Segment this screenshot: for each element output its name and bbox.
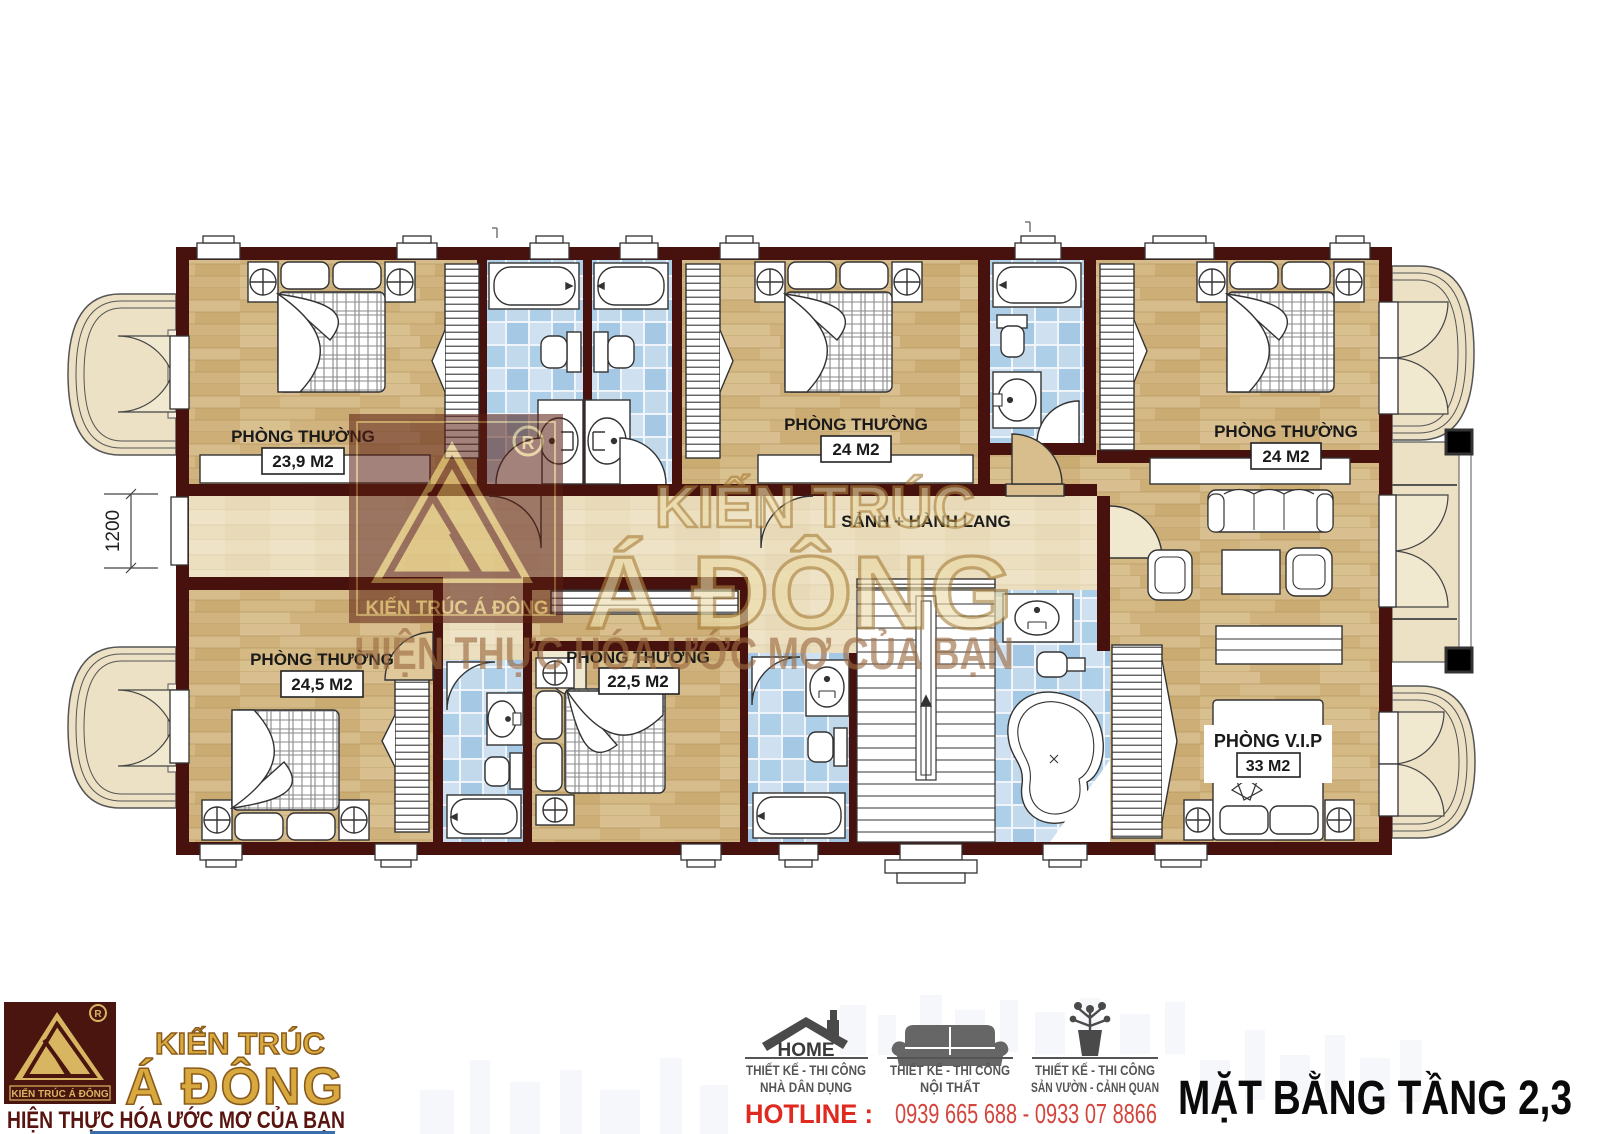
svg-text:PHÒNG THƯỜNG: PHÒNG THƯỜNG <box>784 415 928 434</box>
svg-text:THIẾT KẾ - THI CÔNG: THIẾT KẾ - THI CÔNG <box>1035 1061 1155 1078</box>
svg-text:R: R <box>94 1009 102 1020</box>
svg-text:1200: 1200 <box>103 510 124 552</box>
svg-text:R: R <box>522 433 535 453</box>
svg-text:KIẾN TRÚC Á ĐÔNG: KIẾN TRÚC Á ĐÔNG <box>11 1087 108 1100</box>
svg-text:KIẾN TRÚC: KIẾN TRÚC <box>655 475 975 540</box>
svg-text:33 M2: 33 M2 <box>1246 758 1291 775</box>
svg-text:24,5 M2: 24,5 M2 <box>291 675 352 694</box>
svg-text:SẢN VƯỜN - CẢNH QUAN: SẢN VƯỜN - CẢNH QUAN <box>1031 1078 1159 1095</box>
svg-text:PHÒNG V.I.P: PHÒNG V.I.P <box>1214 730 1322 751</box>
svg-text:THIẾT KẾ - THI CÔNG: THIẾT KẾ - THI CÔNG <box>746 1061 866 1078</box>
svg-text:KIẾN TRÚC: KIẾN TRÚC <box>155 1025 325 1061</box>
svg-text:24 M2: 24 M2 <box>1262 447 1309 466</box>
svg-text:HIỆN THỰC HÓA ƯỚC MƠ CỦA BẠN: HIỆN THỰC HÓA ƯỚC MƠ CỦA BẠN <box>7 1105 345 1134</box>
svg-text:HOTLINE :: HOTLINE : <box>745 1099 873 1129</box>
svg-text:MẶT BẰNG TẦNG 2,3: MẶT BẰNG TẦNG 2,3 <box>1178 1071 1572 1125</box>
svg-text:HIỆN THỰC HÓA ƯỚC MƠ CỦA BẠN: HIỆN THỰC HÓA ƯỚC MƠ CỦA BẠN <box>354 628 1014 679</box>
svg-text:24 M2: 24 M2 <box>832 440 879 459</box>
svg-text:NỘI THẤT: NỘI THẤT <box>920 1078 980 1095</box>
svg-text:THIẾT KẾ - THI CÔNG: THIẾT KẾ - THI CÔNG <box>890 1061 1010 1078</box>
svg-text:0939 665 688 - 0933 07 8866: 0939 665 688 - 0933 07 8866 <box>895 1098 1157 1129</box>
svg-text:PHÒNG THƯỜNG: PHÒNG THƯỜNG <box>1214 422 1358 441</box>
svg-text:KIẾN TRÚC Á ĐÔNG: KIẾN TRÚC Á ĐÔNG <box>366 597 549 619</box>
svg-text:23,9 M2: 23,9 M2 <box>272 452 333 471</box>
svg-text:NHÀ DÂN DỤNG: NHÀ DÂN DỤNG <box>760 1078 852 1095</box>
